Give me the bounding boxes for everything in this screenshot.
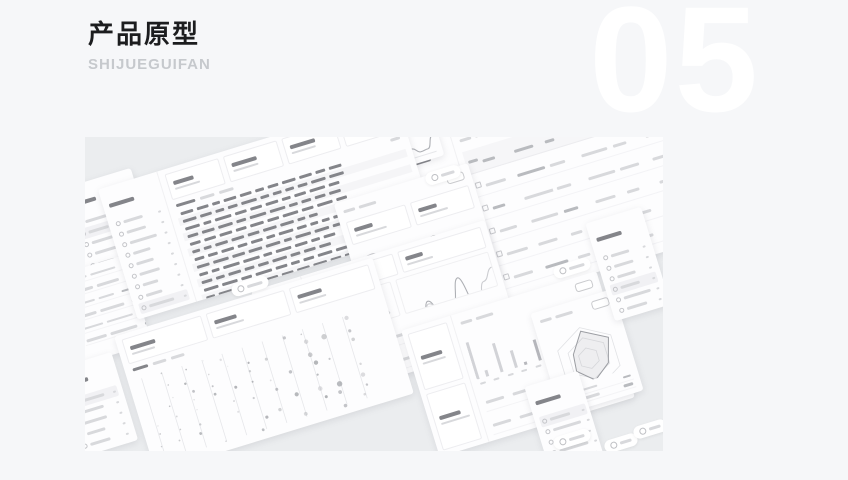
slide-header: 产品原型 SHIJUEGUIFAN: [88, 20, 211, 73]
logo-icon: [559, 437, 568, 446]
page-title: 产品原型: [88, 20, 211, 49]
logo-icon: [237, 284, 246, 293]
logo-icon: [559, 266, 568, 275]
section-number: 05: [589, 0, 760, 134]
slide-page: 产品原型 SHIJUEGUIFAN 05: [0, 0, 848, 480]
logo-pill: [632, 418, 663, 440]
prototype-collage-panel: [85, 137, 663, 451]
logo-icon: [609, 441, 618, 450]
logo-icon: [638, 427, 647, 436]
page-subtitle: SHIJUEGUIFAN: [88, 56, 211, 73]
logo-icon: [431, 173, 440, 182]
